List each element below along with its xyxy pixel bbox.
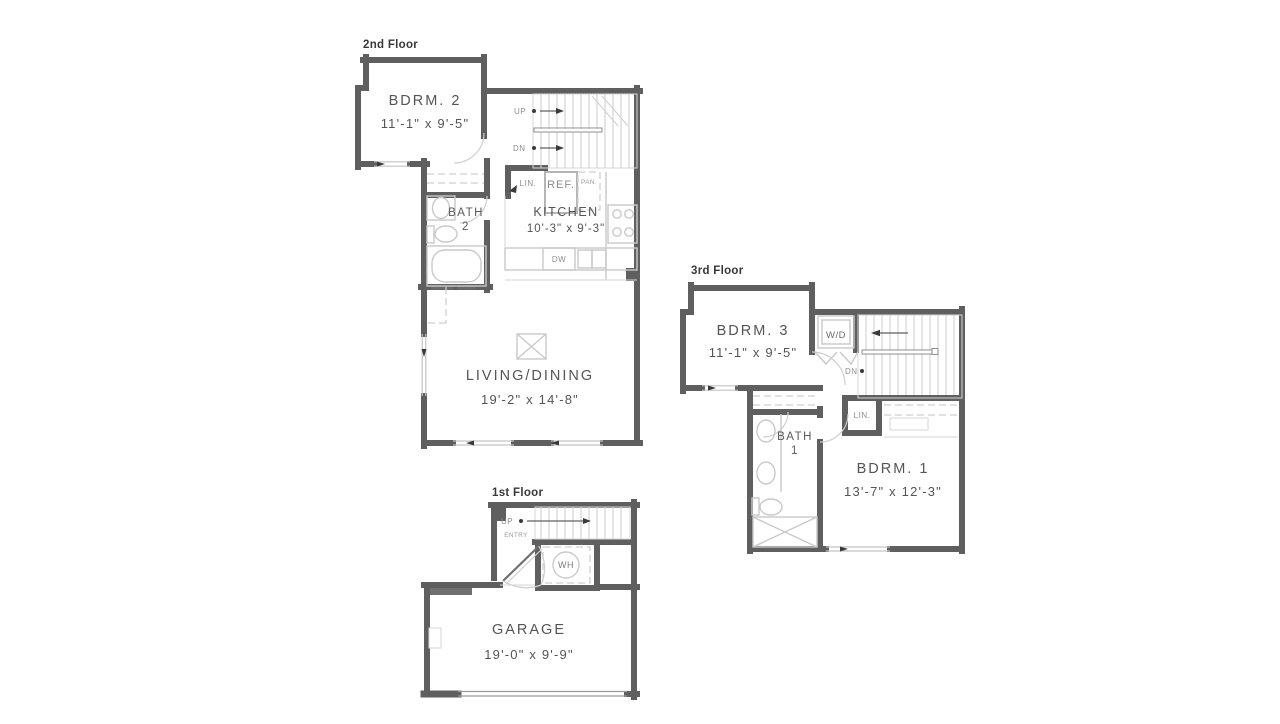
linen-closet-label: LIN.: [520, 179, 537, 188]
floor-plan-third: 3rd Floor: [678, 255, 975, 565]
bdrm2-label: BDRM. 2: [389, 93, 462, 109]
living-dining-dims: 19'-2" x 14'-8": [481, 392, 579, 407]
bdrm3-dims: 11'-1" x 9'-5": [709, 345, 798, 360]
staircase-third-floor: DN: [845, 315, 962, 398]
kitchen-island-counter: [505, 248, 637, 270]
toilet-tank: [427, 226, 434, 243]
bathtub: [427, 246, 486, 286]
living-details: [427, 287, 546, 359]
bath1-label: BATH: [777, 431, 813, 443]
bdrm1-label: BDRM. 1: [857, 461, 930, 477]
stair-direction-arrow-icon: [556, 145, 564, 151]
garage-label: GARAGE: [492, 622, 566, 638]
water-heater-label: WH: [558, 560, 574, 570]
toilet: [435, 226, 457, 242]
kitchen-sink: [592, 250, 606, 268]
up-label: UP: [514, 107, 526, 116]
kitchen-label: KITCHEN: [533, 205, 598, 219]
sink: [757, 462, 775, 484]
pantry-label: PAN.: [581, 179, 597, 186]
bath2-label: BATH: [448, 207, 484, 219]
ceiling-fan-icon: [517, 334, 546, 359]
floor-plan-second: 2nd Floor: [350, 30, 650, 450]
bath1-number: 1: [791, 445, 799, 457]
dishwasher-label: DW: [552, 255, 566, 264]
sink: [433, 198, 450, 219]
stove-cooktop: [608, 205, 637, 243]
washer-dryer-label: W/D: [826, 330, 846, 341]
third-floor-title: 3rd Floor: [691, 265, 744, 277]
bath2-number: 2: [462, 221, 470, 233]
stair-direction-arrow-icon: [871, 330, 880, 336]
third-floor-doors: [763, 352, 848, 442]
kitchen-sink: [578, 250, 592, 268]
door-leaf: [503, 546, 539, 581]
refrigerator-label: REF.: [547, 179, 575, 191]
first-floor-title: 1st Floor: [492, 487, 543, 499]
sink: [757, 420, 775, 442]
bdrm1-dims: 13'-7" x 12'-3": [844, 484, 942, 499]
garage-dims: 19'-0" x 9'-9": [484, 647, 574, 662]
bdrm3-label: BDRM. 3: [717, 323, 790, 339]
door-swing: [454, 133, 484, 163]
staircase-second-floor: UP DN: [513, 94, 637, 168]
stair-direction-arrow-icon: [583, 518, 591, 524]
dn-label: DN: [513, 144, 526, 153]
door-swing: [812, 352, 845, 385]
living-dining-label: LIVING/DINING: [466, 368, 594, 384]
stair-direction-arrow-icon: [556, 108, 564, 114]
water-heater-closet: WH: [543, 547, 590, 583]
bdrm2-dims: 11'-1" x 9'-5": [381, 116, 470, 131]
shower: [753, 517, 817, 547]
dn-label: DN: [845, 367, 858, 376]
washer-dryer-closet: W/D: [815, 316, 858, 364]
wall-notch: [429, 628, 441, 648]
toilet: [760, 499, 782, 515]
entry-label: ENTRY: [504, 532, 528, 539]
kitchen-dims: 10'-3" x 9'-3": [527, 223, 605, 235]
garage-door: [429, 628, 627, 696]
toilet-tank: [752, 498, 759, 515]
second-floor-title: 2nd Floor: [363, 39, 418, 51]
floor-plan-sheet: 2nd Floor: [0, 0, 1280, 724]
floor-plan-first: 1st Floor UP ENTRY: [415, 478, 647, 724]
up-label: UP: [501, 517, 513, 526]
staircase-first-floor: UP ENTRY: [501, 507, 630, 539]
linen-closet-label: LIN.: [854, 411, 871, 420]
